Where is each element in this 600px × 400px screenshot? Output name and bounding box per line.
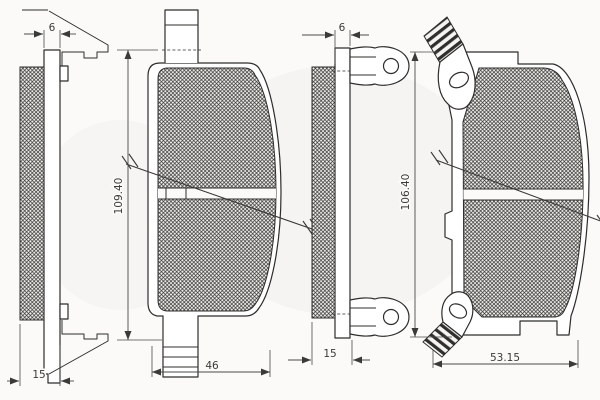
dim-label-53-15: 53.15: [490, 352, 520, 364]
paddle-eyelet: [384, 59, 399, 74]
dim-label-6: 6: [339, 22, 346, 34]
wear-indicator-paddle-bottom: [350, 298, 409, 337]
backing-plate-side: [44, 50, 60, 383]
wear-groove: [455, 189, 595, 200]
dimension-plate-thickness: 6: [24, 22, 76, 48]
dim-label-15: 15: [32, 369, 45, 381]
friction-material-side: [20, 67, 44, 320]
dimension-total-thickness: 15: [7, 324, 74, 386]
guide-lug-top: [60, 66, 68, 81]
friction-material-side: [312, 67, 335, 318]
dim-label-46: 46: [205, 360, 219, 372]
wear-indicator-bottom: [423, 292, 473, 357]
dim-label-106-40: 106.40: [400, 174, 412, 211]
guide-lug-bottom: [60, 304, 68, 319]
mounting-tab-top: [165, 10, 198, 63]
technical-drawing-page: 6 15 109.40: [0, 0, 600, 400]
dim-label-109-40: 109.40: [113, 178, 125, 215]
dim-label-15: 15: [323, 348, 336, 360]
wear-indicator-paddle-top: [350, 47, 409, 86]
brake-pad-drawing: 6 15 109.40: [0, 0, 600, 400]
dim-label-6: 6: [49, 22, 56, 34]
paddle-eyelet: [384, 310, 399, 325]
backing-plate-side: [335, 48, 350, 338]
